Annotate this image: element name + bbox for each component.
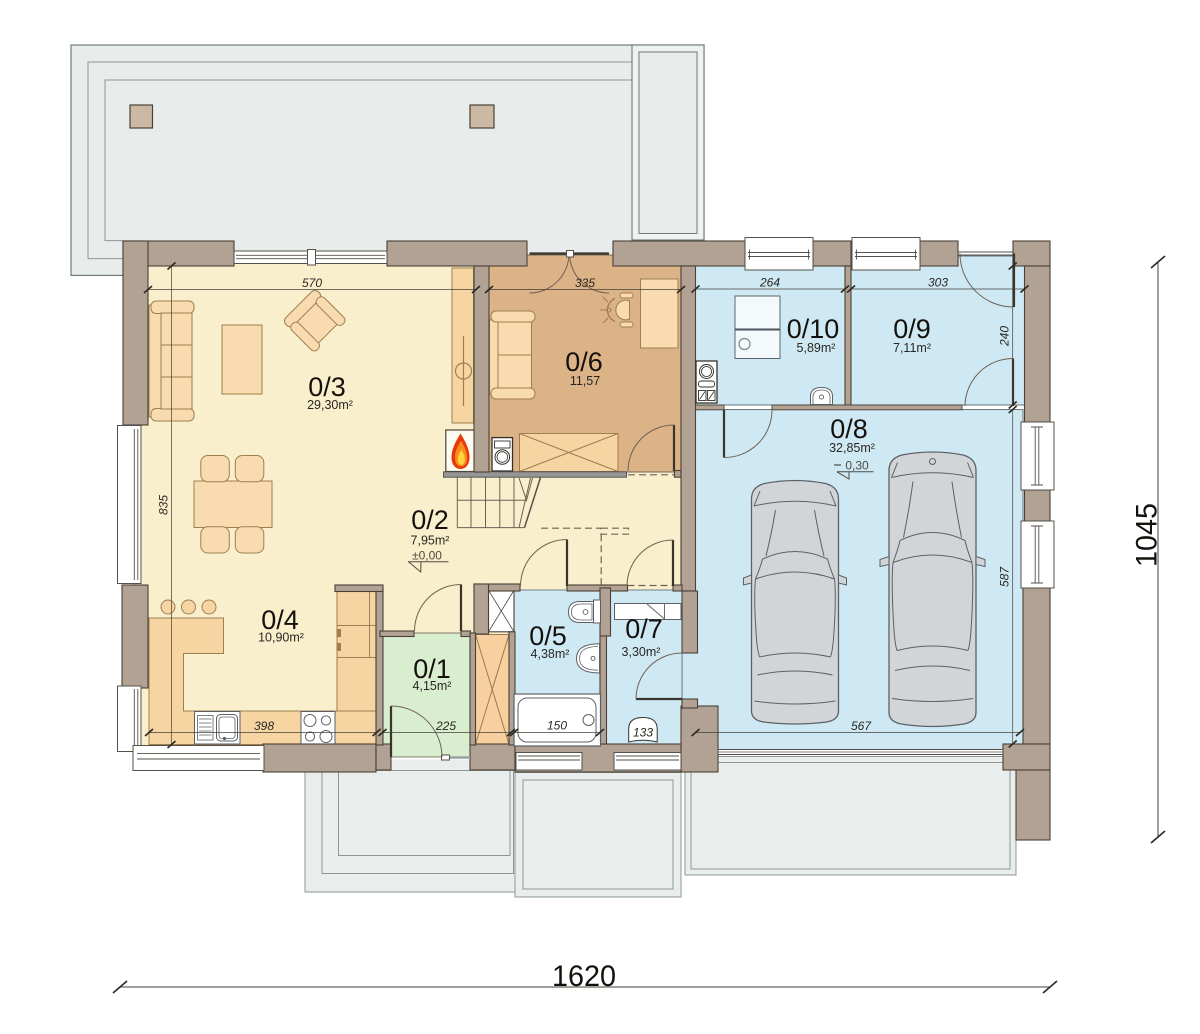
svg-text:240: 240 xyxy=(998,326,1012,347)
svg-text:0/6: 0/6 xyxy=(565,347,603,377)
svg-text:±0,00: ±0,00 xyxy=(412,549,442,563)
svg-text:0/2: 0/2 xyxy=(411,505,449,535)
svg-text:0,30: 0,30 xyxy=(845,459,869,473)
svg-text:587: 587 xyxy=(998,566,1012,587)
svg-text:4,38m²: 4,38m² xyxy=(531,647,570,661)
svg-text:335: 335 xyxy=(575,276,595,290)
svg-text:570: 570 xyxy=(302,276,322,290)
svg-text:398: 398 xyxy=(254,719,274,733)
svg-text:4,15m²: 4,15m² xyxy=(413,679,452,693)
svg-text:7,11m²: 7,11m² xyxy=(893,341,931,355)
svg-text:29,30m²: 29,30m² xyxy=(307,398,353,412)
svg-text:264: 264 xyxy=(759,276,780,290)
svg-text:1620: 1620 xyxy=(552,960,616,993)
svg-text:10,90m²: 10,90m² xyxy=(258,631,304,645)
svg-text:835: 835 xyxy=(157,495,171,515)
svg-text:0/10: 0/10 xyxy=(787,314,840,344)
svg-text:32,85m²: 32,85m² xyxy=(829,441,875,455)
svg-text:150: 150 xyxy=(547,719,567,733)
svg-text:567: 567 xyxy=(851,719,872,733)
svg-text:7,95m²: 7,95m² xyxy=(411,534,450,548)
svg-text:0/7: 0/7 xyxy=(625,614,663,644)
svg-text:133: 133 xyxy=(633,726,653,740)
svg-text:225: 225 xyxy=(435,719,456,733)
svg-text:3,30m²: 3,30m² xyxy=(622,645,661,659)
svg-text:303: 303 xyxy=(928,276,948,290)
svg-text:11,57: 11,57 xyxy=(570,374,600,388)
svg-text:0/9: 0/9 xyxy=(893,314,931,344)
svg-text:0/8: 0/8 xyxy=(830,414,868,444)
svg-text:1045: 1045 xyxy=(1131,503,1164,567)
svg-text:5,89m²: 5,89m² xyxy=(797,341,836,355)
